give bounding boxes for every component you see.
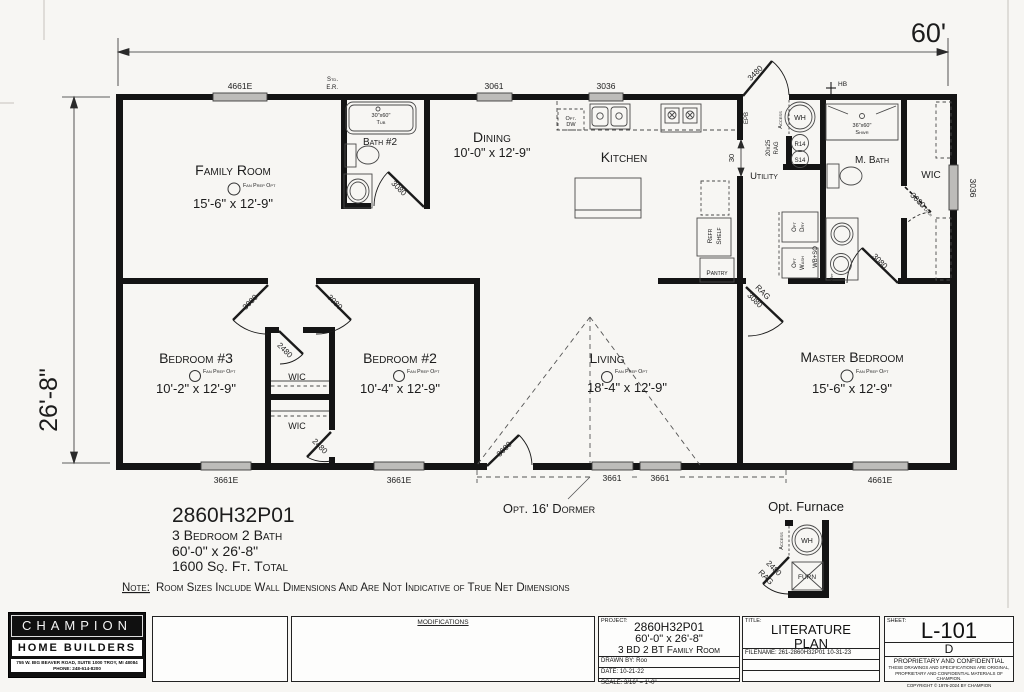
door-label: 2480: [310, 437, 329, 456]
room-name: Bath #2: [363, 137, 397, 148]
sheet-revision: D: [885, 642, 1013, 656]
water-heater-label: WH: [794, 115, 806, 122]
plan-size: 60'-0" x 26'-8": [172, 543, 258, 559]
door-label: 3080: [389, 179, 408, 198]
room-name: WIC: [288, 421, 306, 431]
room-size: 15'-6" x 12'-9": [193, 196, 273, 211]
room-size: 10'-4" x 12'-9": [360, 381, 440, 396]
room-name: Master Bedroom: [800, 349, 903, 365]
vent-label: S14: [795, 158, 806, 164]
title-label: TITLE:: [745, 618, 762, 624]
access-label: Access: [778, 111, 784, 129]
fan-note: Fan Prep Opt: [243, 183, 276, 189]
project-label: PROJECT:: [601, 618, 628, 624]
window-label: 3036: [968, 179, 978, 198]
fine-line: PROPRIETARY AND CONFIDENTIAL MATERIALS O…: [885, 671, 1013, 682]
project-desc: 3 BD 2 BT Family Room: [599, 645, 739, 656]
fan-note: Fan Prep Opt: [856, 369, 889, 375]
plan-beds: 3 Bedroom 2 Bath: [172, 527, 282, 543]
fixture-label: Refr: [707, 228, 714, 243]
floor-plan: 60' 26'-8" 30: [0, 0, 1024, 610]
window-label: 4661E: [868, 475, 893, 485]
date: DATE: 10-21-22: [599, 667, 739, 678]
room-name: WIC: [921, 170, 940, 181]
room-name: Dining: [473, 129, 511, 145]
fixture-label: Shwr: [855, 130, 868, 136]
walls: [116, 94, 957, 470]
filename: FILENAME: 261-2860H32P01 10-31-23: [743, 648, 879, 659]
fine-line: THESE DRAWINGS AND SPECIFICATIONS ARE OR…: [885, 665, 1013, 671]
company-logo: CHAMPION HOME BUILDERS 755 W. BIG BEAVER…: [8, 612, 146, 678]
address-line: 755 W. BIG BEAVER ROAD, SUITE 1000 TROY,…: [11, 660, 143, 666]
fixture-label: Shelf: [716, 227, 723, 244]
logo-address: 755 W. BIG BEAVER ROAD, SUITE 1000 TROY,…: [11, 659, 143, 672]
sheet-box: SHEET: L-101 D PROPRIETARY AND CONFIDENT…: [884, 616, 1014, 682]
plan-model: 2860H32P01: [172, 504, 295, 527]
drawing-sheet: 60' 26'-8" 30: [0, 0, 1024, 692]
access-label: Access: [779, 532, 785, 550]
furnace-title: Opt. Furnace: [768, 499, 844, 514]
room-name: Bedroom #3: [159, 350, 233, 366]
window-label: 3036: [597, 81, 616, 91]
copyright-line: COPYRIGHT © 1976-2024 BY CHAMPION: [885, 682, 1013, 688]
empty-row: [743, 659, 879, 670]
plan-sqft: 1600 Sq. Ft. Total: [172, 558, 288, 574]
scale: SCALE: 3/16" = 1'-0": [599, 678, 739, 689]
water-heater-label: WH: [801, 538, 813, 545]
fixture-label: 30"x60": [372, 113, 391, 119]
room-name: Living: [589, 350, 624, 366]
confidential-header: PROPRIETARY AND CONFIDENTIAL: [885, 656, 1013, 665]
fan-note: Fan Prep Opt: [615, 369, 648, 375]
room-size: 15'-6" x 12'-9": [812, 381, 892, 396]
blank-box: [152, 616, 288, 682]
logo-champion: CHAMPION: [11, 615, 143, 637]
room-size: 10'-0" x 12'-9": [454, 146, 531, 160]
project-box: PROJECT: 2860H32P01 60'-0" x 26'-8" 3 BD…: [598, 616, 740, 682]
note-label: Note:: [122, 582, 150, 594]
window-label: 3661: [603, 473, 622, 483]
title-block: CHAMPION HOME BUILDERS 755 W. BIG BEAVER…: [8, 612, 1016, 688]
title-box: TITLE: LITERATURE PLAN FILENAME: 261-286…: [742, 616, 880, 682]
fixture-label: Opt: [829, 273, 834, 281]
pass-dim-30: 30: [727, 154, 736, 162]
hose-bib-label: HB: [838, 81, 847, 88]
hose-bib-icon: [826, 82, 836, 94]
modifications-header: MODIFICATIONS: [292, 617, 594, 626]
room-name: Bedroom #2: [363, 350, 437, 366]
window-label: 3061: [485, 81, 504, 91]
room-size: 10'-2" x 12'-9": [156, 381, 236, 396]
fixture-label: Pantry: [706, 270, 728, 277]
fixture-label: Wash: [800, 256, 806, 270]
confidential-fine-print: THESE DRAWINGS AND SPECIFICATIONS ARE OR…: [885, 665, 1013, 682]
furnace-detail: [785, 520, 829, 598]
door-label: 3080: [870, 252, 889, 271]
room-name: M. Bath: [855, 155, 889, 166]
vent-label: R14: [794, 142, 806, 148]
std-er-label: E.R.: [326, 85, 338, 91]
fixture-label: Tub: [377, 120, 386, 126]
fan-note: Fan Prep Opt: [203, 369, 236, 375]
fixture-label: Opt: [792, 222, 798, 232]
window-label: 3661E: [214, 475, 239, 485]
wbso-label: WB+SO: [813, 246, 819, 268]
window-label: 3661E: [387, 475, 412, 485]
modifications-box: MODIFICATIONS: [291, 616, 595, 682]
rag-size-label: 20x25: [766, 139, 772, 156]
fixture-label: DW: [566, 122, 576, 128]
window-label: 3661: [651, 473, 670, 483]
room-name: Kitchen: [601, 149, 648, 165]
window-label: 4661E: [228, 81, 253, 91]
overall-width-dim: 60': [911, 18, 946, 48]
kitchen-fixtures: [557, 101, 737, 282]
page-edge-marks: [0, 0, 1008, 608]
dormer-label: Opt. 16' Dormer: [503, 501, 596, 516]
empty-row: [743, 670, 879, 681]
std-er-label: Std.: [327, 77, 338, 83]
overall-height-dim: 26'-8": [35, 368, 63, 432]
room-name: WIC: [288, 372, 306, 382]
fixture-label: Opt: [792, 258, 798, 268]
room-name: Utility: [750, 171, 778, 182]
phone-line: PHONE: 248-614-8200: [11, 666, 143, 672]
project-size: 60'-0" x 26'-8": [599, 634, 739, 646]
furnace-label: FURN: [798, 574, 816, 581]
rag-label: RAG: [774, 141, 780, 154]
sheet-title-line1: LITERATURE: [743, 623, 879, 637]
epb-label: EPB: [744, 112, 750, 124]
dormer-leader: [568, 477, 590, 499]
room-size: 18'-4" x 12'-9": [587, 380, 667, 395]
fixture-label: Dry: [800, 222, 806, 232]
room-name: Family Room: [195, 162, 271, 178]
fan-note: Fan Prep Opt: [407, 369, 440, 375]
sheet-label: SHEET:: [887, 618, 906, 624]
note-text: Room Sizes Include Wall Dimensions And A…: [156, 582, 570, 594]
fixture-label: 36"x60": [853, 123, 872, 129]
drawn-by: DRAWN BY: Roo: [599, 656, 739, 667]
logo-home-builders: HOME BUILDERS: [11, 639, 143, 657]
